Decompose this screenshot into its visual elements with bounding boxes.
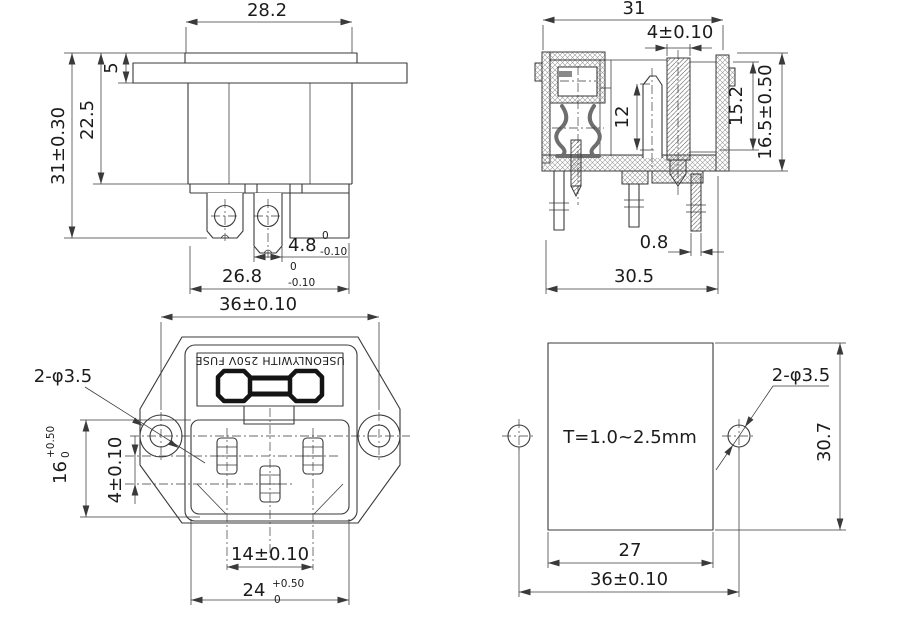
technical-drawing-canvas: 28.2 31±0.30 22.5 5 4.8 0 -0.10 26.8 0 -… <box>0 0 905 622</box>
housing-top-band <box>550 52 605 60</box>
drawer-latch <box>244 406 294 424</box>
dim-pin-thickness-label: 0.8 <box>640 232 669 253</box>
dim-body-depth-label: 22.5 <box>77 100 98 140</box>
dim-outer-height-label: 16.5±0.50 <box>755 64 776 159</box>
fuse-clip-pin-tip <box>571 186 581 196</box>
step-notch-right <box>290 184 302 193</box>
fuse-cap-left <box>218 371 250 401</box>
solder-pin-left <box>554 171 564 230</box>
cutout-holes-label: 2-φ3.5 <box>772 365 830 386</box>
dim-recess-width-label: 24 <box>243 580 266 601</box>
dim-lower-width-label: 26.8 <box>222 266 262 287</box>
cutout-view: T=1.0~2.5mm 2-φ3.5 30.7 27 36±0.10 <box>502 343 846 597</box>
dim-hole-pitch-label: 36±0.10 <box>219 294 297 315</box>
step-notch-left <box>245 184 257 193</box>
pin-crimp-ticks <box>549 200 706 212</box>
dim-inner-height-label: 15.2 <box>726 86 747 126</box>
flange <box>133 63 407 83</box>
body-outline <box>188 83 352 184</box>
dim-ext <box>691 233 701 256</box>
fuse-clip-left-arm <box>556 106 566 156</box>
dim-tab-tol-upper: 0 <box>322 230 329 242</box>
dim-pin-row-offset-label: 4±0.10 <box>105 437 126 504</box>
dim-tab-width-label: 4.8 <box>288 235 317 256</box>
fuse-cap-right <box>290 371 322 401</box>
front-view: USEONLYWITH 250V FUSE 36±0.10 2-φ3.5 16 … <box>34 294 410 606</box>
dim-recess-height-label: 16 <box>50 461 71 484</box>
solder-pin-middle <box>629 184 639 227</box>
live-blade <box>667 58 690 160</box>
socket-contact <box>643 76 662 158</box>
solder-pin-right <box>691 174 701 231</box>
dim-ext <box>186 27 352 53</box>
leader-arrow <box>745 416 754 427</box>
dim-slot-width-label: 4±0.10 <box>647 22 714 43</box>
dim-contact-length-label: 12 <box>612 106 633 129</box>
dim-ext <box>667 44 690 56</box>
dim-top-width-label: 28.2 <box>247 0 287 21</box>
dim-pin-pitch-label: 14±0.10 <box>231 544 309 565</box>
step-band <box>190 184 349 193</box>
panel-thickness-label: T=1.0~2.5mm <box>562 427 696 448</box>
dim-tab-tol-lower: -0.10 <box>320 246 347 258</box>
dim-flange-thickness-label: 5 <box>101 62 122 73</box>
dim-bottom-width-label: 30.5 <box>614 266 654 287</box>
section-view: 31 4±0.10 12 15.2 16.5±0.50 0.8 30.5 <box>535 0 788 294</box>
rear-face-outline <box>185 53 357 63</box>
fuse-clip-pin <box>571 140 581 186</box>
dim-recess-width-tol-lower: 0 <box>274 594 281 606</box>
dim-lower-tol-upper: 0 <box>290 261 297 273</box>
dim-cut-width-label: 27 <box>619 540 642 561</box>
dim-holes-label: 2-φ3.5 <box>34 366 92 387</box>
dim-section-width-label: 31 <box>623 0 646 19</box>
side-view: 28.2 31±0.30 22.5 5 4.8 0 -0.10 26.8 0 -… <box>48 0 407 294</box>
fuse-drawer-label: USEONLYWITH 250V FUSE <box>195 354 345 367</box>
housing-pin-boss <box>622 171 648 184</box>
housing-left-bump <box>535 63 542 81</box>
fuse-clip-right-arm <box>590 106 600 156</box>
dim-total-depth-label: 31±0.30 <box>48 107 69 185</box>
dim-cutout-hole-pitch-label: 36±0.10 <box>590 569 668 590</box>
terminal-right-block <box>290 193 349 238</box>
dim-lower-tol-lower: -0.10 <box>288 277 315 289</box>
leader-arrow <box>724 445 733 456</box>
fuse-cap-mark <box>559 71 572 77</box>
dim-recess-height-tol-upper: +0.50 <box>45 426 57 458</box>
dim-cut-height-label: 30.7 <box>814 422 835 462</box>
body-inner-lines <box>229 83 310 184</box>
housing-left-wall <box>542 52 550 163</box>
dim-recess-height-tol-lower: 0 <box>60 451 72 458</box>
dim-recess-width-tol-upper: +0.50 <box>272 578 304 590</box>
housing-right-bump <box>729 68 735 86</box>
drawing-svg: 28.2 31±0.30 22.5 5 4.8 0 -0.10 26.8 0 -… <box>0 0 905 622</box>
